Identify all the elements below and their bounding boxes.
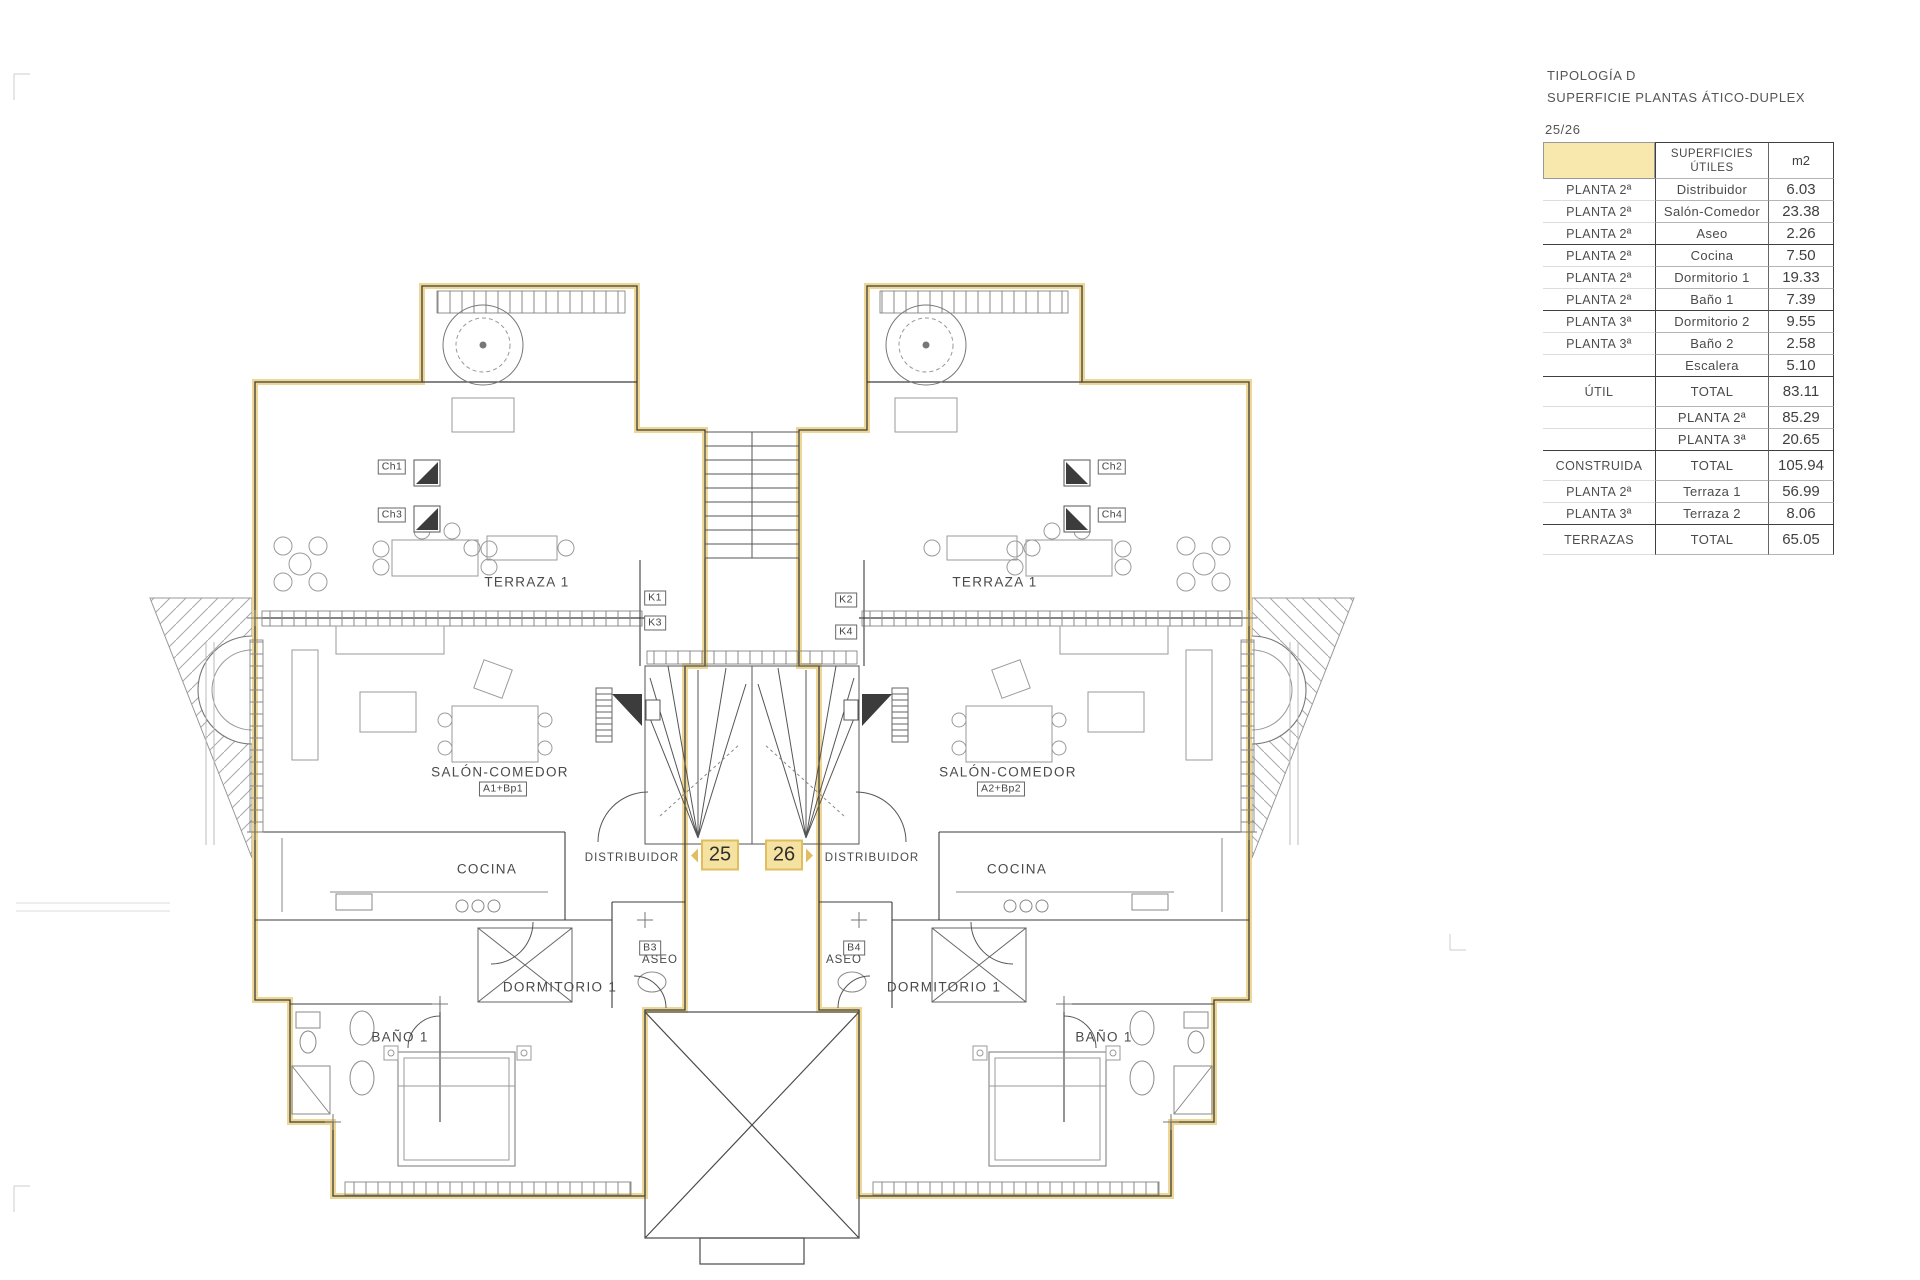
row-room: Escalera	[1655, 355, 1768, 377]
row-room: Distribuidor	[1655, 179, 1768, 201]
tag-a2bp2: A2+Bp2	[977, 782, 1025, 797]
row-floor: PLANTA 2ª	[1543, 223, 1655, 245]
row-floor: PLANTA 3ª	[1543, 503, 1655, 525]
tag-a1bp1: A1+Bp1	[479, 782, 527, 797]
row-room: TOTAL	[1655, 377, 1768, 407]
row-floor	[1543, 429, 1655, 451]
table-row: PLANTA 3ª 20.65	[1543, 429, 1834, 451]
table-row: PLANTA 2ª Aseo 2.26	[1543, 223, 1834, 245]
table-row: PLANTA 2ª Cocina 7.50	[1543, 245, 1834, 267]
table-header-line2: ÚTILES	[1690, 161, 1733, 175]
room-label-dormitorio1-left: DORMITORIO 1	[503, 980, 617, 995]
room-label-terraza1-left: TERRAZA 1	[484, 575, 569, 590]
tag-ch4: Ch4	[1098, 508, 1126, 523]
room-label-dormitorio1-right: DORMITORIO 1	[887, 980, 1001, 995]
table-row: PLANTA 2ª Distribuidor 6.03	[1543, 179, 1834, 201]
room-label-terraza1-right: TERRAZA 1	[952, 575, 1037, 590]
row-room: Terraza 2	[1655, 503, 1768, 525]
row-floor: TERRAZAS	[1543, 525, 1655, 555]
row-room: Dormitorio 1	[1655, 267, 1768, 289]
row-area: 85.29	[1768, 407, 1834, 429]
row-floor	[1543, 355, 1655, 377]
table-row: PLANTA 2ª Baño 1 7.39	[1543, 289, 1834, 311]
table-row: PLANTA 2ª Terraza 1 56.99	[1543, 481, 1834, 503]
row-floor	[1543, 407, 1655, 429]
row-area: 20.65	[1768, 429, 1834, 451]
row-area: 2.26	[1768, 223, 1834, 245]
table-header-m2: m2	[1768, 142, 1834, 179]
row-area: 7.50	[1768, 245, 1834, 267]
unit-badge-25: 25	[701, 840, 739, 871]
row-room: Cocina	[1655, 245, 1768, 267]
room-label-aseo-left: ASEO	[642, 954, 678, 966]
room-label-bano1-right: BAÑO 1	[1075, 1030, 1132, 1045]
tag-ch3: Ch3	[378, 508, 406, 523]
tag-k2: K2	[835, 593, 857, 608]
table-total-row-terrazas: TERRAZAS TOTAL 65.05	[1543, 525, 1834, 555]
row-area: 56.99	[1768, 481, 1834, 503]
table-row: PLANTA 2ª Salón-Comedor 23.38	[1543, 201, 1834, 223]
fixtures	[282, 838, 1222, 1114]
row-area: 6.03	[1768, 179, 1834, 201]
room-label-cocina-left: COCINA	[457, 862, 517, 877]
tag-b4: B4	[843, 941, 865, 956]
row-floor: PLANTA 2ª	[1543, 481, 1655, 503]
table-total-row-construida: CONSTRUIDA TOTAL 105.94	[1543, 451, 1834, 481]
row-floor: PLANTA 2ª	[1543, 267, 1655, 289]
roof-hatch-left	[150, 598, 252, 858]
tag-k1: K1	[644, 591, 666, 606]
row-area: 23.38	[1768, 201, 1834, 223]
table-row: Escalera 5.10	[1543, 355, 1834, 377]
row-area: 8.06	[1768, 503, 1834, 525]
room-label-salon-left: SALÓN-COMEDOR	[431, 765, 569, 780]
tag-k4: K4	[835, 625, 857, 640]
table-total-row-util: ÚTIL TOTAL 83.11	[1543, 377, 1834, 407]
typology-subtitle: SUPERFICIE PLANTAS ÁTICO-DUPLEX	[1547, 90, 1805, 105]
elevator-shaft	[645, 1012, 859, 1264]
room-label-distribuidor-left: DISTRIBUIDOR	[585, 852, 679, 864]
row-area: 9.55	[1768, 311, 1834, 333]
row-room: TOTAL	[1655, 525, 1768, 555]
table-row: PLANTA 2ª Dormitorio 1 19.33	[1543, 267, 1834, 289]
typology-title: TIPOLOGÍA D	[1547, 68, 1636, 83]
row-room: Baño 1	[1655, 289, 1768, 311]
table-row: PLANTA 3ª Terraza 2 8.06	[1543, 503, 1834, 525]
surface-table: SUPERFICIES ÚTILES m2 PLANTA 2ª Distribu…	[1543, 142, 1834, 555]
row-area: 5.10	[1768, 355, 1834, 377]
row-floor: CONSTRUIDA	[1543, 451, 1655, 481]
room-label-salon-right: SALÓN-COMEDOR	[939, 765, 1077, 780]
table-header-superficies: SUPERFICIES ÚTILES	[1655, 142, 1768, 179]
row-area: 7.39	[1768, 289, 1834, 311]
row-floor: ÚTIL	[1543, 377, 1655, 407]
table-row: PLANTA 3ª Dormitorio 2 9.55	[1543, 311, 1834, 333]
table-header-line1: SUPERFICIES	[1671, 147, 1753, 161]
tag-ch2: Ch2	[1098, 460, 1126, 475]
row-area: 2.58	[1768, 333, 1834, 355]
row-area: 65.05	[1768, 525, 1834, 555]
room-label-distribuidor-right: DISTRIBUIDOR	[825, 852, 919, 864]
table-header-highlight-cell	[1543, 142, 1655, 179]
table-row: PLANTA 2ª 85.29	[1543, 407, 1834, 429]
row-room: PLANTA 2ª	[1655, 407, 1768, 429]
row-room: Terraza 1	[1655, 481, 1768, 503]
row-floor: PLANTA 3ª	[1543, 311, 1655, 333]
row-floor: PLANTA 3ª	[1543, 333, 1655, 355]
room-label-aseo-right: ASEO	[826, 954, 862, 966]
row-room: Aseo	[1655, 223, 1768, 245]
tag-k3: K3	[644, 616, 666, 631]
row-room: PLANTA 3ª	[1655, 429, 1768, 451]
row-floor: PLANTA 2ª	[1543, 179, 1655, 201]
row-area: 105.94	[1768, 451, 1834, 481]
stairs-upper	[705, 432, 799, 558]
row-room: Dormitorio 2	[1655, 311, 1768, 333]
row-floor: PLANTA 2ª	[1543, 245, 1655, 267]
row-room: Salón-Comedor	[1655, 201, 1768, 223]
table-row: PLANTA 3ª Baño 2 2.58	[1543, 333, 1834, 355]
row-area: 19.33	[1768, 267, 1834, 289]
unit-badge-26: 26	[765, 840, 803, 871]
stairs-main	[645, 666, 859, 844]
tower-turrets	[443, 305, 966, 432]
tag-b3: B3	[639, 941, 661, 956]
row-area: 83.11	[1768, 377, 1834, 407]
room-label-bano1-left: BAÑO 1	[371, 1030, 428, 1045]
room-label-cocina-right: COCINA	[987, 862, 1047, 877]
tag-ch1: Ch1	[378, 460, 406, 475]
row-floor: PLANTA 2ª	[1543, 201, 1655, 223]
unit-numbers: 25/26	[1545, 122, 1581, 137]
row-floor: PLANTA 2ª	[1543, 289, 1655, 311]
roof-hatch-right	[1252, 598, 1354, 858]
floor-plan-sheet: TERRAZA 1 TERRAZA 1 SALÓN-COMEDOR SALÓN-…	[0, 0, 1920, 1280]
row-room: Baño 2	[1655, 333, 1768, 355]
table-header-row: SUPERFICIES ÚTILES m2	[1543, 142, 1834, 179]
row-room: TOTAL	[1655, 451, 1768, 481]
